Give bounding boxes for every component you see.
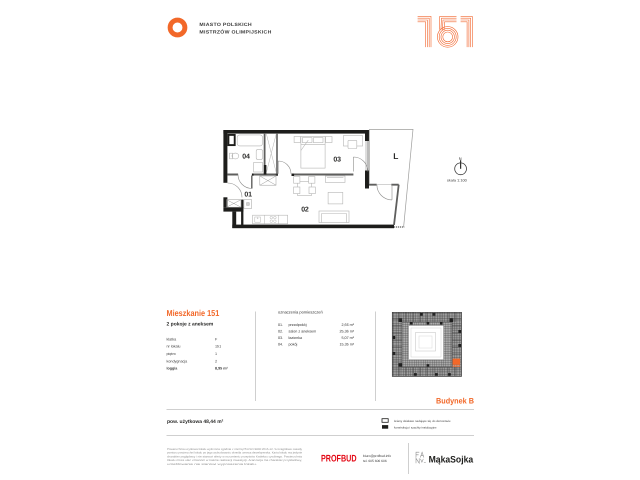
svg-text:łazienka: łazienka: [289, 336, 303, 340]
svg-text:pow. użytkowa 48,44 m²: pow. użytkowa 48,44 m²: [167, 419, 224, 425]
svg-text:N: N: [459, 156, 462, 161]
svg-text:klatka: klatka: [167, 337, 178, 341]
svg-text:tel. 605 606 606: tel. 605 606 606: [363, 459, 387, 463]
svg-text:04.: 04.: [278, 343, 283, 347]
svg-text:151: 151: [215, 345, 221, 349]
svg-text:loggia: loggia: [167, 366, 179, 370]
svg-text:2,66 m²: 2,66 m²: [341, 323, 354, 327]
svg-text:MISTRZÓW OLIMPIJSKICH: MISTRZÓW OLIMPIJSKICH: [199, 29, 272, 35]
svg-text:pomiaru powierzchni lokalu po: pomiaru powierzchni lokalu po jego wybud…: [167, 452, 303, 455]
svg-text:biuro@profbud.info: biuro@profbud.info: [363, 454, 391, 458]
svg-text:01: 01: [244, 191, 252, 198]
svg-text:przedpokój: przedpokój: [289, 323, 307, 327]
svg-text:03.: 03.: [278, 336, 283, 340]
svg-text:01.: 01.: [278, 323, 283, 327]
svg-text:konstrukcja i szachty instalac: konstrukcja i szachty instalacyjne: [394, 425, 437, 429]
svg-text:salon z aneksem: salon z aneksem: [289, 330, 317, 334]
svg-text:Powierzchnia użytkowa lokalu w: Powierzchnia użytkowa lokalu wyliczona z…: [167, 448, 303, 451]
svg-text:pokój: pokój: [289, 343, 298, 347]
svg-text:25,36 m²: 25,36 m²: [339, 330, 354, 334]
svg-text:Budynek B: Budynek B: [436, 396, 474, 405]
svg-text:umeblowanie nie stanowi wyposa: umeblowanie nie stanowi wyposażenia loka…: [167, 463, 257, 466]
svg-text:MIASTO POLSKICH: MIASTO POLSKICH: [199, 22, 252, 27]
svg-text:piętro: piętro: [167, 352, 176, 356]
svg-text:2: 2: [215, 359, 217, 363]
svg-text:5,07 m²: 5,07 m²: [341, 336, 354, 340]
svg-text:1: 1: [215, 352, 217, 356]
svg-text:ściany działowe nadające się d: ściany działowe nadające się do demontaż…: [394, 419, 451, 423]
svg-text:kondygnacja: kondygnacja: [167, 359, 189, 363]
svg-text:L: L: [393, 151, 398, 161]
svg-text:02: 02: [301, 206, 309, 213]
svg-text:2 pokoje z aneksem: 2 pokoje z aneksem: [167, 322, 214, 328]
svg-text:charakter poglądowy i nie stan: charakter poglądowy i nie stanowi oferty…: [167, 455, 303, 458]
svg-text:8,95 m²: 8,95 m²: [215, 366, 228, 370]
svg-text:Mieszkanie 151: Mieszkanie 151: [167, 308, 220, 318]
svg-text:skala 1:100: skala 1:100: [447, 179, 467, 183]
svg-text:nr lokalu: nr lokalu: [167, 345, 181, 349]
svg-text:15,35 m²: 15,35 m²: [339, 343, 354, 347]
svg-text:oznaczenia pomieszczeń: oznaczenia pomieszczeń: [278, 310, 323, 315]
svg-text:lokalu może ulec zmianom w tra: lokalu może ulec zmianom w trakcie reali…: [167, 459, 302, 462]
svg-text:PROFBUD: PROFBUD: [321, 454, 357, 465]
svg-text:03: 03: [333, 157, 341, 164]
svg-text:04: 04: [242, 154, 250, 161]
svg-text:MąkaSojka: MąkaSojka: [429, 453, 474, 464]
svg-text:02.: 02.: [278, 330, 283, 334]
